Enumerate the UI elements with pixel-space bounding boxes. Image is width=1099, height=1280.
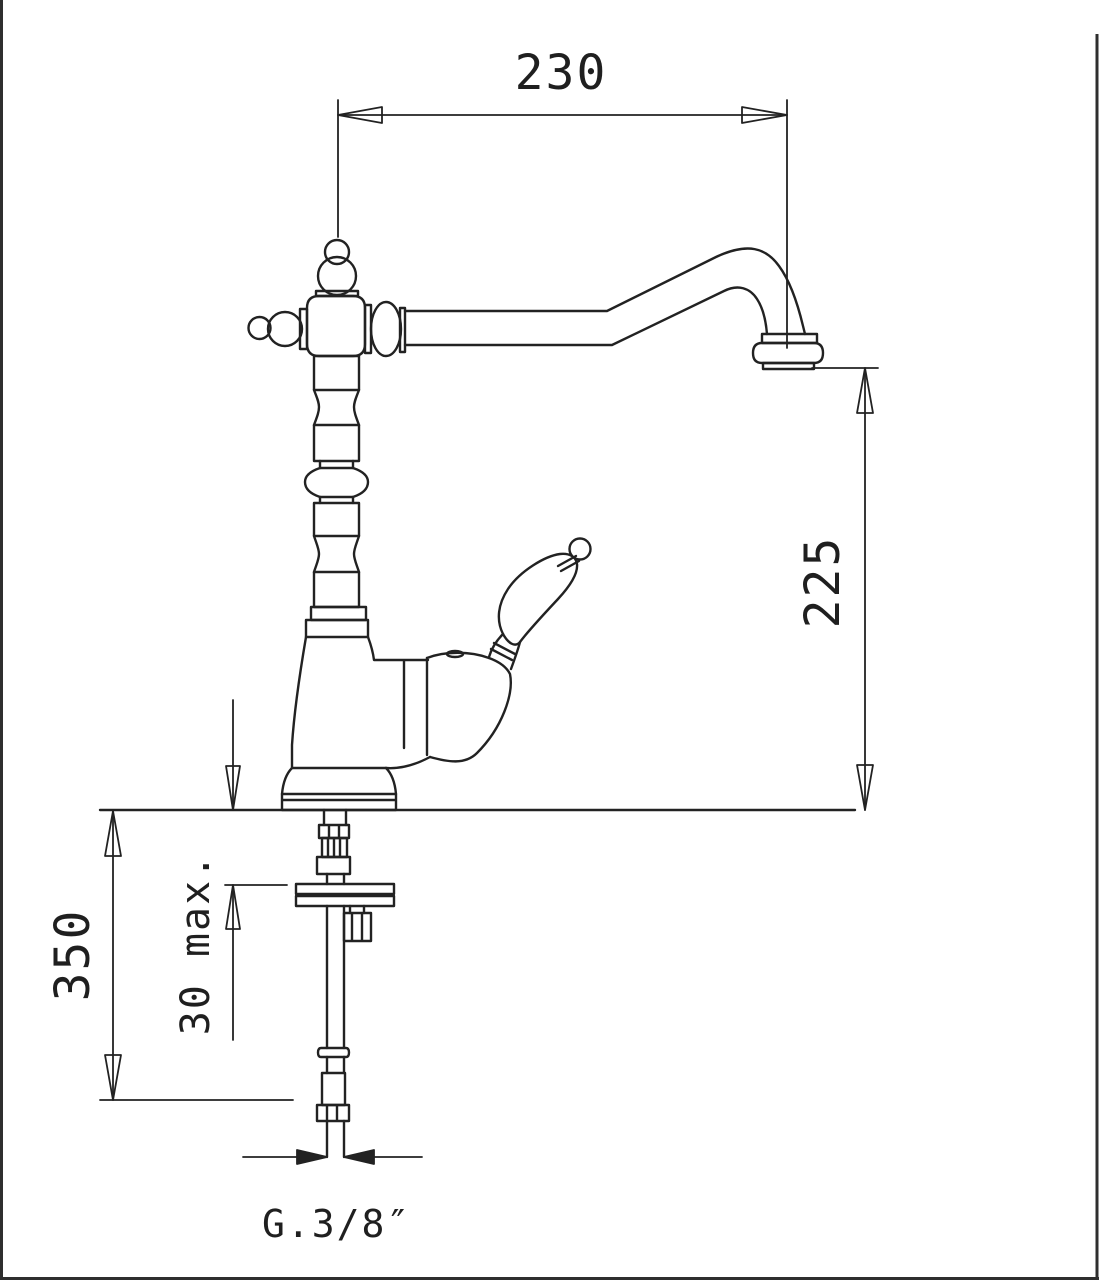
technical-drawing-canvas: 230 225 350 30 max. G.3/8″ <box>0 0 1099 1280</box>
mounting-nut <box>344 913 371 941</box>
mounting-washer-bottom <box>296 896 394 906</box>
dimension-deck-thickness <box>225 700 287 1040</box>
column-baluster <box>305 356 368 637</box>
page-border <box>0 0 1099 1280</box>
label-deck-thickness: 30 max. <box>173 853 219 1036</box>
spout-arm <box>405 248 805 345</box>
dimension-labels: 230 225 350 30 max. G.3/8″ <box>45 45 851 1246</box>
arrow-right-icon <box>297 1150 327 1164</box>
label-spout-height: 225 <box>795 536 851 629</box>
left-ornament-balls <box>249 309 308 349</box>
faucet-body <box>282 637 511 810</box>
spout-cross-body <box>307 296 365 356</box>
faucet-dimension-drawing: 230 225 350 30 max. G.3/8″ <box>0 0 1099 1280</box>
lever-handle <box>489 539 591 670</box>
handle-ball <box>570 539 591 560</box>
arrow-left-icon <box>344 1150 374 1164</box>
aerator <box>753 334 823 369</box>
spout-connector <box>365 302 405 356</box>
label-below-counter: 350 <box>45 909 101 1002</box>
label-thread-size: G.3/8″ <box>262 1202 411 1246</box>
mounting-washer-top <box>296 884 394 894</box>
finial-balls <box>316 240 358 296</box>
label-spout-reach: 230 <box>515 45 608 101</box>
dimension-thread <box>243 1150 422 1164</box>
supply-pipe <box>327 1121 344 1157</box>
under-counter-assembly <box>296 810 394 1157</box>
